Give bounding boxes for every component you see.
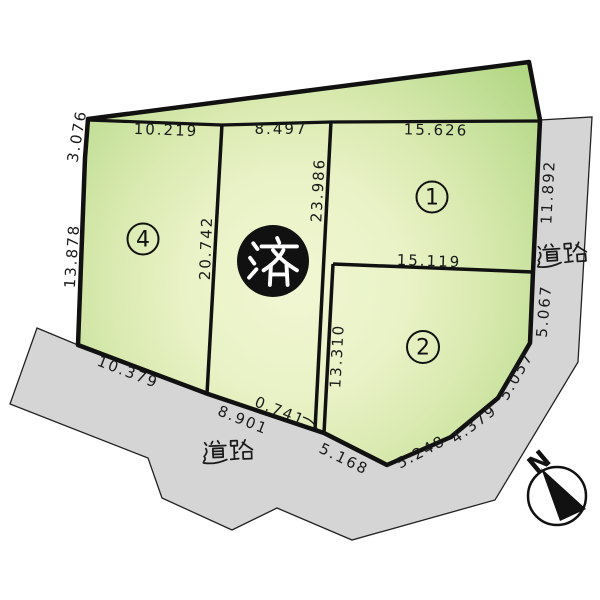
plot-2-number: 2 (416, 336, 430, 361)
plot-1-number: 1 (425, 186, 439, 211)
sold-badge (237, 225, 309, 297)
dim-divider-1-2: 15.119 (396, 251, 461, 271)
plot-map-canvas: 10.219 8.497 15.626 3.076 13.878 20.742 … (0, 0, 600, 600)
dim-top-sold: 8.497 (255, 120, 308, 138)
dim-top-plot4: 10.219 (133, 120, 198, 140)
plot-map-svg: 10.219 8.497 15.626 3.076 13.878 20.742 … (0, 0, 600, 600)
plot-4-number: 4 (136, 228, 150, 253)
dim-right-plot1: 11.892 (537, 159, 558, 224)
dim-divider-sold-1: 23.986 (307, 157, 328, 222)
dim-top-plot1: 15.626 (404, 120, 469, 139)
dim-left-plot2: 13.310 (326, 323, 347, 388)
dim-divider-4-sold: 20.742 (196, 215, 216, 280)
